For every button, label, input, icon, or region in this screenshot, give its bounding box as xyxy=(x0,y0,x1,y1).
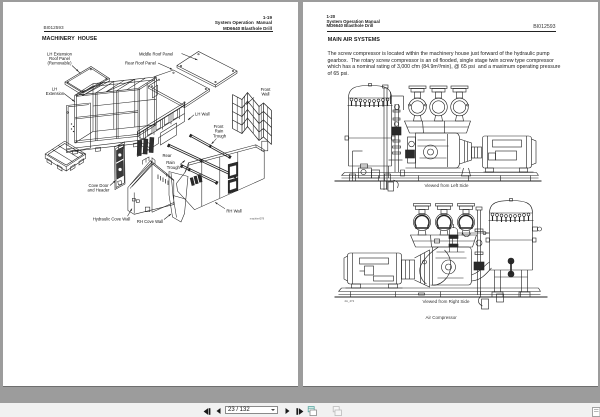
svg-text:machinr/078: machinr/078 xyxy=(249,216,264,220)
svg-text:Trough: Trough xyxy=(166,165,180,170)
svg-text:Rear: Rear xyxy=(162,153,172,158)
svg-text:Wall: Wall xyxy=(261,92,269,97)
svg-text:LH Wall: LH Wall xyxy=(195,112,210,117)
svg-text:Middle Roof Panel: Middle Roof Panel xyxy=(139,51,173,56)
svg-text:RH Cove Wall: RH Cove Wall xyxy=(136,219,162,224)
svg-text:and Header: and Header xyxy=(87,188,109,193)
svg-text:2A_472: 2A_472 xyxy=(344,299,354,303)
svg-text:Trough: Trough xyxy=(212,134,226,139)
svg-text:Rear Roof Panel: Rear Roof Panel xyxy=(125,60,156,65)
svg-text:RH Wall: RH Wall xyxy=(226,208,241,213)
svg-text:(Removable): (Removable) xyxy=(47,61,72,66)
svg-text:Extension: Extension xyxy=(45,91,64,96)
svg-text:Hydraulic Cove Wall: Hydraulic Cove Wall xyxy=(92,216,130,221)
